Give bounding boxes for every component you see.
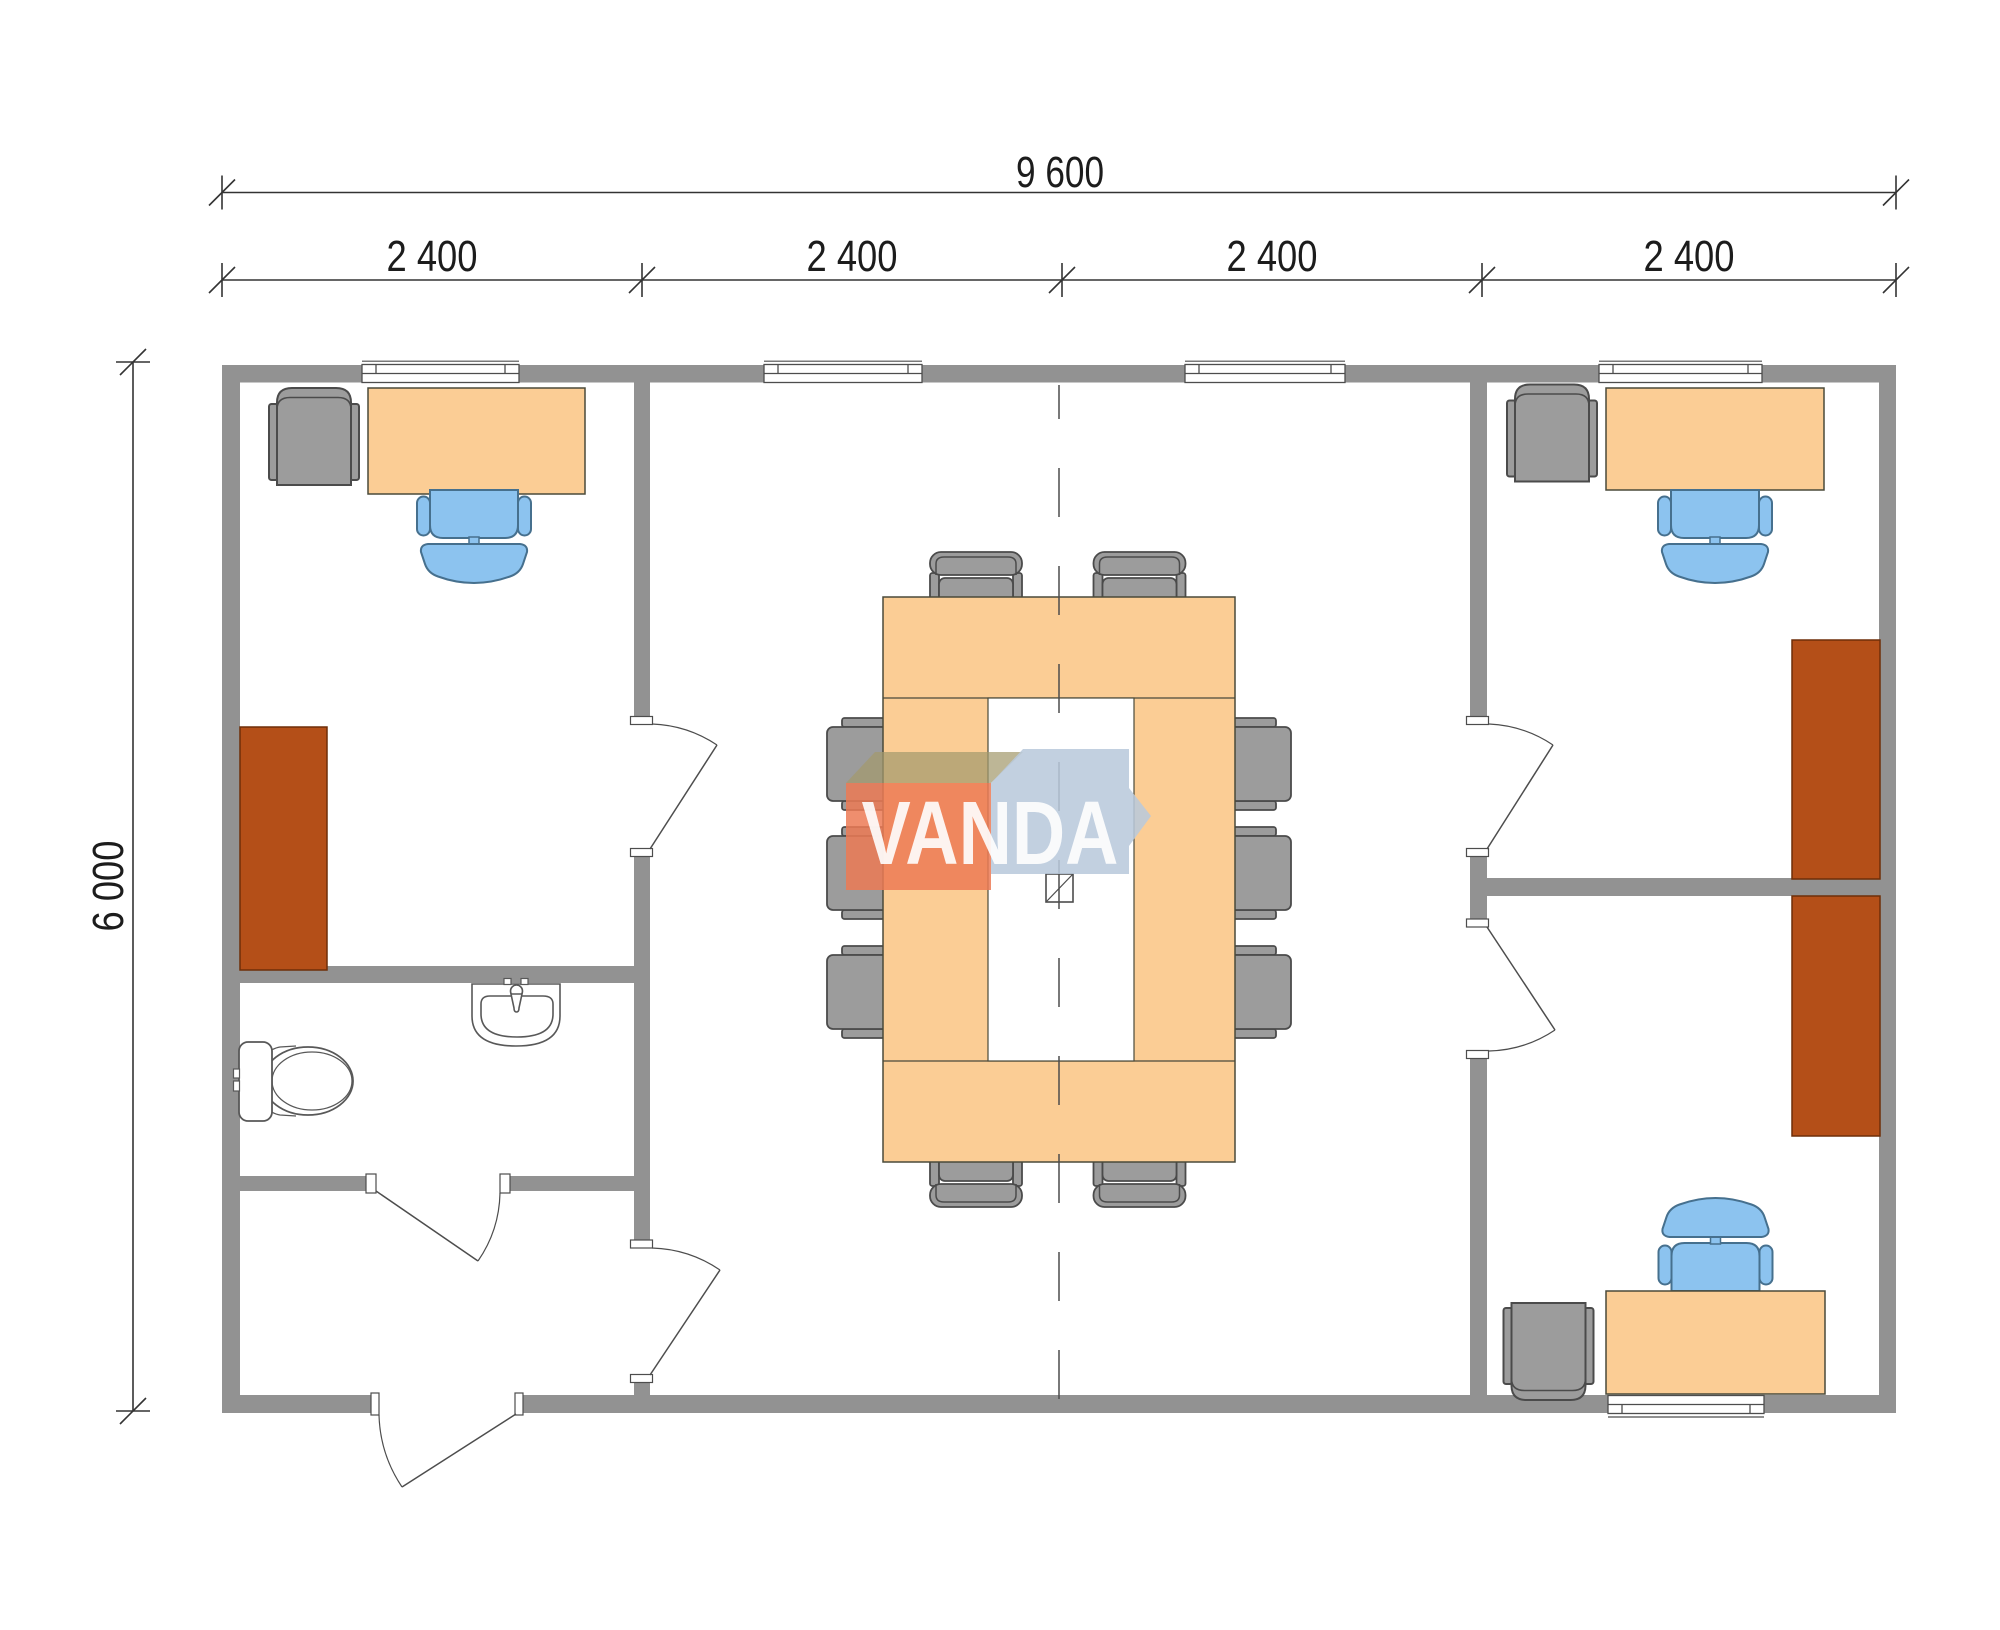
- svg-text:9 600: 9 600: [1016, 148, 1104, 197]
- svg-text:2 400: 2 400: [1227, 232, 1318, 281]
- svg-text:2 400: 2 400: [1644, 232, 1735, 281]
- svg-text:2 400: 2 400: [387, 232, 478, 281]
- svg-text:VANDA: VANDA: [862, 784, 1119, 884]
- svg-text:2 400: 2 400: [807, 232, 898, 281]
- svg-text:6 000: 6 000: [84, 841, 133, 932]
